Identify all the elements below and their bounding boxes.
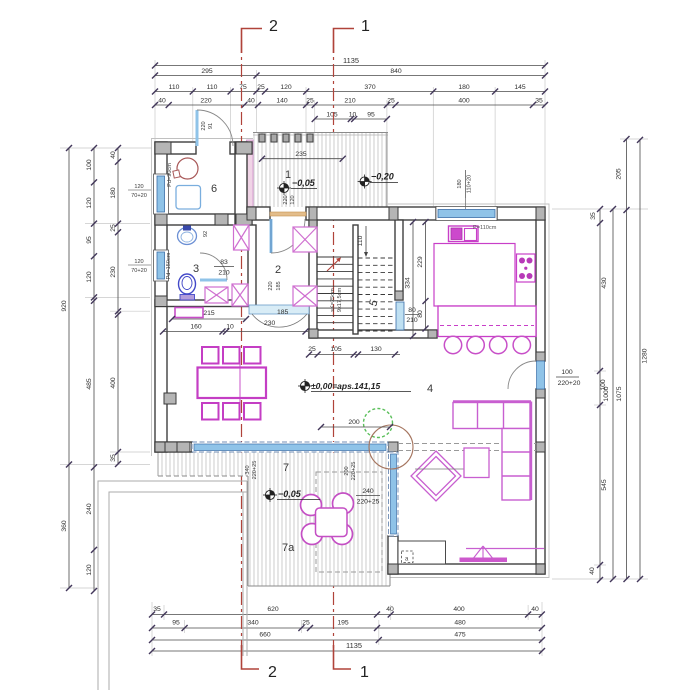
svg-text:1135: 1135 — [343, 56, 359, 65]
svg-text:91: 91 — [208, 123, 214, 129]
svg-text:145: 145 — [514, 84, 526, 91]
svg-text:7a: 7a — [282, 542, 295, 554]
svg-text:2: 2 — [268, 664, 277, 681]
svg-text:235: 235 — [295, 151, 307, 158]
svg-text:185: 185 — [277, 309, 289, 316]
svg-text:220: 220 — [283, 195, 289, 204]
svg-text:210: 210 — [218, 270, 230, 277]
svg-text:105: 105 — [326, 112, 338, 119]
svg-text:25: 25 — [387, 98, 395, 105]
svg-text:430: 430 — [601, 277, 608, 289]
svg-text:100: 100 — [561, 369, 573, 376]
svg-text:1: 1 — [285, 169, 291, 181]
svg-text:40: 40 — [158, 98, 166, 105]
svg-text:485: 485 — [86, 378, 93, 390]
svg-text:95: 95 — [367, 112, 375, 119]
svg-text:P=110cm: P=110cm — [473, 225, 497, 231]
svg-text:35: 35 — [153, 606, 161, 613]
svg-text:140: 140 — [276, 98, 288, 105]
svg-text:160: 160 — [190, 324, 202, 331]
svg-text:200: 200 — [348, 419, 360, 426]
svg-text:620: 620 — [267, 606, 279, 613]
svg-text:Pd=90cm: Pd=90cm — [167, 163, 173, 187]
svg-text:−0,20: −0,20 — [371, 172, 394, 182]
svg-text:120: 120 — [134, 184, 143, 190]
svg-text:7: 7 — [283, 462, 289, 474]
svg-text:25: 25 — [257, 84, 265, 91]
svg-text:2: 2 — [269, 18, 278, 35]
svg-text:480: 480 — [454, 620, 466, 627]
svg-text:40: 40 — [589, 567, 596, 575]
svg-text:25: 25 — [306, 98, 314, 105]
svg-text:25: 25 — [302, 620, 310, 627]
svg-text:230: 230 — [110, 266, 117, 278]
svg-text:83: 83 — [220, 259, 228, 266]
svg-text:295: 295 — [201, 68, 213, 75]
svg-text:100: 100 — [86, 159, 93, 171]
svg-text:220+25: 220+25 — [252, 461, 258, 480]
svg-text:80: 80 — [417, 310, 424, 318]
svg-text:110: 110 — [169, 84, 180, 91]
svg-text:220+25: 220+25 — [357, 499, 380, 506]
svg-text:240: 240 — [362, 488, 374, 495]
svg-text:3: 3 — [193, 263, 199, 275]
svg-text:105: 105 — [330, 346, 342, 353]
svg-text:1280: 1280 — [642, 348, 649, 363]
svg-text:40: 40 — [531, 606, 539, 613]
svg-text:1: 1 — [361, 18, 370, 35]
svg-text:10: 10 — [226, 324, 234, 331]
svg-text:75: 75 — [239, 84, 247, 91]
svg-text:110: 110 — [207, 84, 218, 91]
svg-text:195: 195 — [337, 620, 349, 627]
svg-text:400: 400 — [110, 377, 117, 389]
svg-text:220: 220 — [200, 98, 212, 105]
svg-text:120: 120 — [86, 564, 93, 576]
svg-text:180: 180 — [110, 187, 117, 199]
svg-text:920: 920 — [61, 300, 68, 312]
svg-text:sK=25cm: sK=25cm — [330, 288, 336, 312]
svg-text:240: 240 — [86, 503, 93, 515]
svg-text:40: 40 — [386, 606, 394, 613]
svg-text:2: 2 — [275, 264, 281, 276]
svg-text:370: 370 — [364, 84, 376, 91]
svg-text:95: 95 — [86, 236, 93, 244]
svg-text:40: 40 — [110, 151, 117, 159]
svg-text:400: 400 — [458, 98, 470, 105]
svg-text:110: 110 — [357, 235, 364, 246]
svg-text:334: 334 — [405, 277, 412, 289]
svg-text:120: 120 — [280, 84, 292, 91]
svg-text:1000: 1000 — [603, 386, 610, 401]
svg-text:25: 25 — [308, 346, 316, 353]
svg-text:215: 215 — [203, 310, 215, 317]
svg-text:205: 205 — [616, 168, 623, 180]
svg-text:92: 92 — [203, 231, 209, 237]
svg-text:Pd=150cm: Pd=150cm — [166, 252, 172, 279]
svg-text:9x17,5cm: 9x17,5cm — [337, 288, 343, 313]
svg-text:360: 360 — [61, 520, 68, 532]
svg-text:35: 35 — [590, 212, 597, 220]
svg-text:475: 475 — [454, 632, 466, 639]
svg-text:70+20: 70+20 — [131, 193, 147, 199]
svg-text:10: 10 — [349, 112, 357, 119]
svg-text:220: 220 — [268, 281, 274, 290]
svg-text:210: 210 — [406, 317, 418, 324]
svg-text:70+20: 70+20 — [131, 268, 147, 274]
svg-text:220+20: 220+20 — [558, 380, 581, 387]
svg-text:25: 25 — [110, 224, 117, 232]
svg-text:1075: 1075 — [616, 386, 623, 401]
svg-text:180: 180 — [458, 84, 470, 91]
svg-text:−0,05: −0,05 — [292, 178, 316, 188]
svg-text:6: 6 — [211, 183, 217, 195]
svg-text:200: 200 — [344, 466, 350, 475]
svg-text:400: 400 — [453, 606, 465, 613]
svg-text:229: 229 — [417, 256, 424, 268]
svg-text:180: 180 — [457, 179, 463, 188]
svg-text:220+25: 220+25 — [351, 462, 357, 481]
svg-text:185: 185 — [276, 281, 282, 290]
svg-text:340: 340 — [245, 465, 251, 474]
svg-text:120: 120 — [86, 271, 93, 283]
svg-text:35: 35 — [110, 454, 117, 462]
svg-text:210: 210 — [344, 98, 356, 105]
svg-text:840: 840 — [390, 68, 402, 75]
svg-text:545: 545 — [601, 479, 608, 491]
svg-text:95: 95 — [172, 620, 180, 627]
svg-text:220: 220 — [201, 121, 207, 130]
svg-text:80: 80 — [408, 307, 416, 314]
svg-text:40: 40 — [247, 98, 255, 105]
svg-text:130: 130 — [370, 346, 382, 353]
svg-text:±0,00=aps.141,15: ±0,00=aps.141,15 — [311, 381, 380, 391]
svg-text:110+20: 110+20 — [467, 175, 473, 193]
svg-text:1: 1 — [360, 664, 369, 681]
svg-text:120: 120 — [86, 197, 93, 209]
svg-text:1135: 1135 — [346, 641, 362, 650]
svg-text:4: 4 — [427, 383, 433, 395]
svg-text:120: 120 — [134, 259, 143, 265]
svg-text:230: 230 — [264, 320, 276, 327]
svg-text:120: 120 — [290, 195, 296, 204]
svg-text:35: 35 — [535, 98, 543, 105]
svg-text:340: 340 — [247, 620, 259, 627]
svg-text:660: 660 — [259, 632, 271, 639]
svg-text:−0,05: −0,05 — [278, 489, 302, 499]
